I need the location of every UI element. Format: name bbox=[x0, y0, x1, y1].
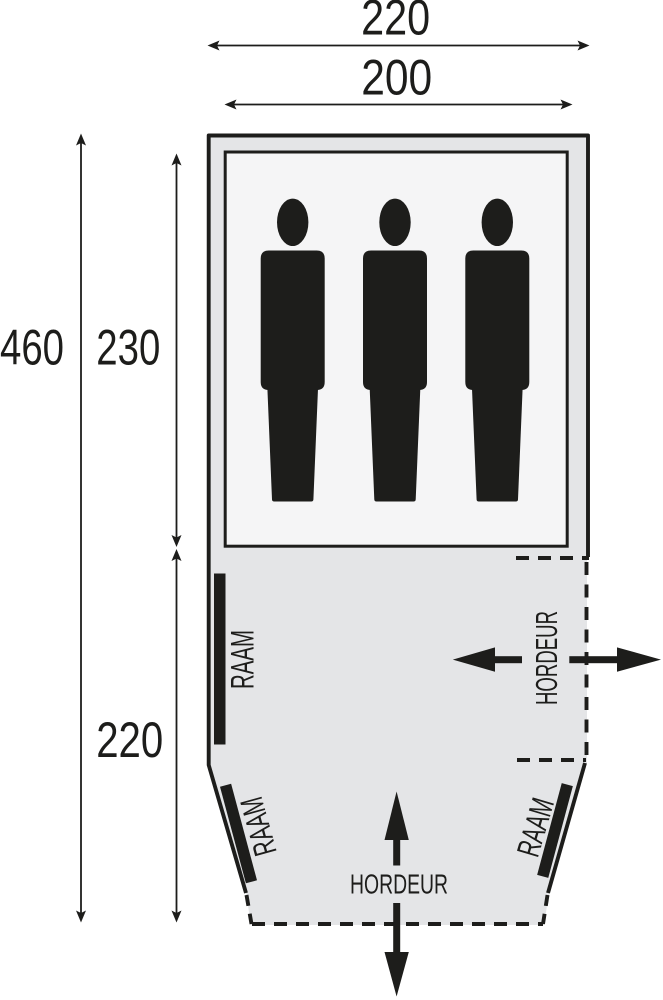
svg-text:RAAM: RAAM bbox=[225, 630, 261, 689]
svg-text:HORDEUR: HORDEUR bbox=[529, 611, 564, 705]
svg-text:460: 460 bbox=[0, 319, 64, 375]
svg-text:220: 220 bbox=[361, 0, 430, 46]
svg-text:230: 230 bbox=[96, 319, 160, 375]
svg-text:HORDEUR: HORDEUR bbox=[350, 869, 448, 900]
svg-text:200: 200 bbox=[361, 49, 432, 105]
svg-text:220: 220 bbox=[96, 712, 163, 768]
